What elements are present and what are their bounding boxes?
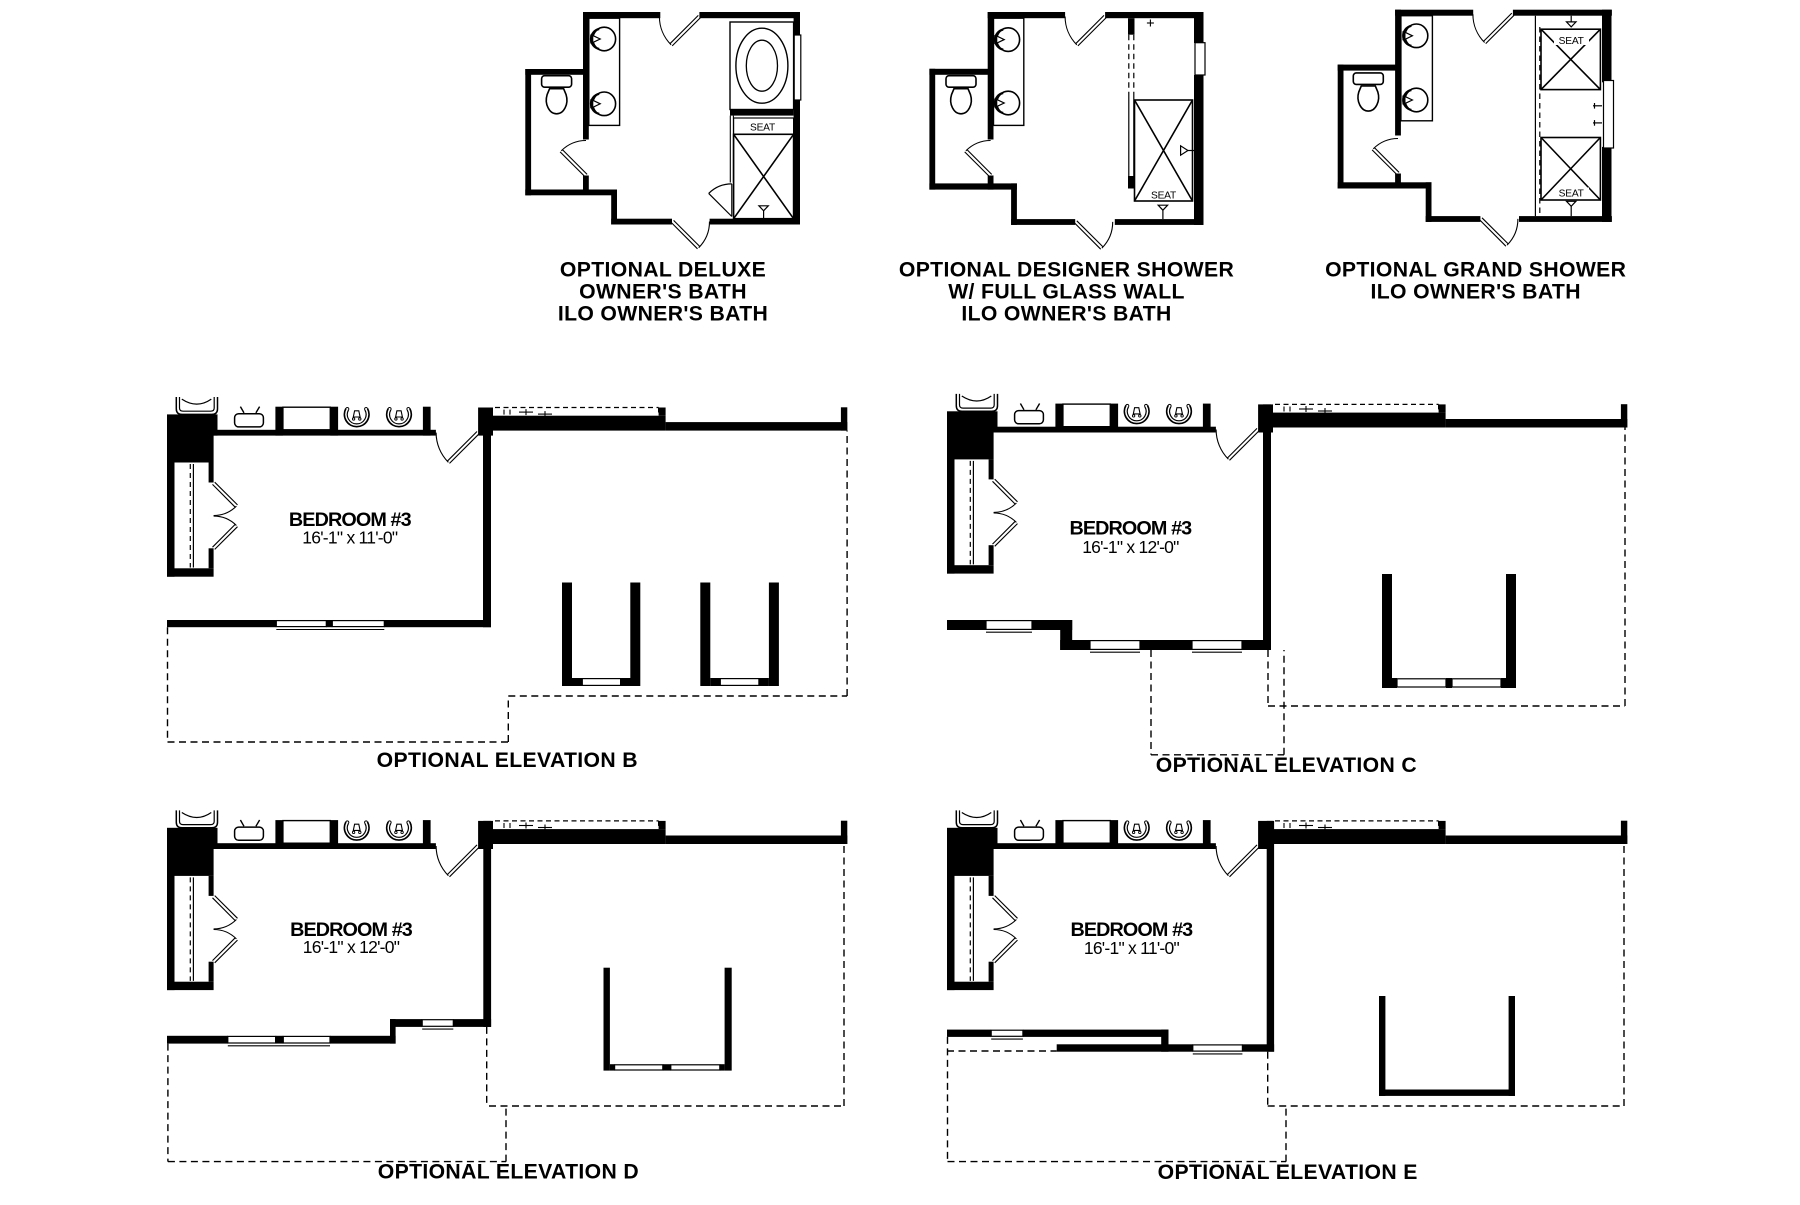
svg-text:16'-1" x 11'-0": 16'-1" x 11'-0" (1084, 938, 1180, 958)
svg-text:OPTIONAL ELEVATION E: OPTIONAL ELEVATION E (1158, 1161, 1418, 1184)
svg-text:SEAT: SEAT (1559, 189, 1584, 200)
svg-text:W/ FULL GLASS WALL: W/ FULL GLASS WALL (948, 281, 1185, 304)
svg-text:OPTIONAL ELEVATION B: OPTIONAL ELEVATION B (377, 749, 638, 772)
svg-text:OWNER'S BATH: OWNER'S BATH (579, 281, 747, 304)
svg-text:16'-1" x 12'-0": 16'-1" x 12'-0" (1082, 537, 1179, 557)
svg-text:ILO OWNER'S BATH: ILO OWNER'S BATH (558, 303, 768, 326)
svg-text:OPTIONAL DELUXE: OPTIONAL DELUXE (560, 259, 766, 282)
svg-text:SEAT: SEAT (750, 123, 775, 134)
svg-text:ILO OWNER'S BATH: ILO OWNER'S BATH (961, 303, 1171, 326)
svg-text:16'-1" x 12'-0": 16'-1" x 12'-0" (303, 937, 400, 957)
svg-text:OPTIONAL GRAND SHOWER: OPTIONAL GRAND SHOWER (1325, 259, 1626, 282)
svg-text:OPTIONAL ELEVATION D: OPTIONAL ELEVATION D (378, 1160, 639, 1183)
svg-text:OPTIONAL ELEVATION C: OPTIONAL ELEVATION C (1156, 754, 1417, 777)
svg-text:SEAT: SEAT (1559, 36, 1584, 47)
svg-text:ILO OWNER'S BATH: ILO OWNER'S BATH (1371, 281, 1581, 304)
svg-text:SEAT: SEAT (1151, 191, 1176, 202)
svg-text:OPTIONAL DESIGNER SHOWER: OPTIONAL DESIGNER SHOWER (899, 259, 1234, 282)
svg-text:16'-1" x 11'-0": 16'-1" x 11'-0" (302, 527, 398, 547)
